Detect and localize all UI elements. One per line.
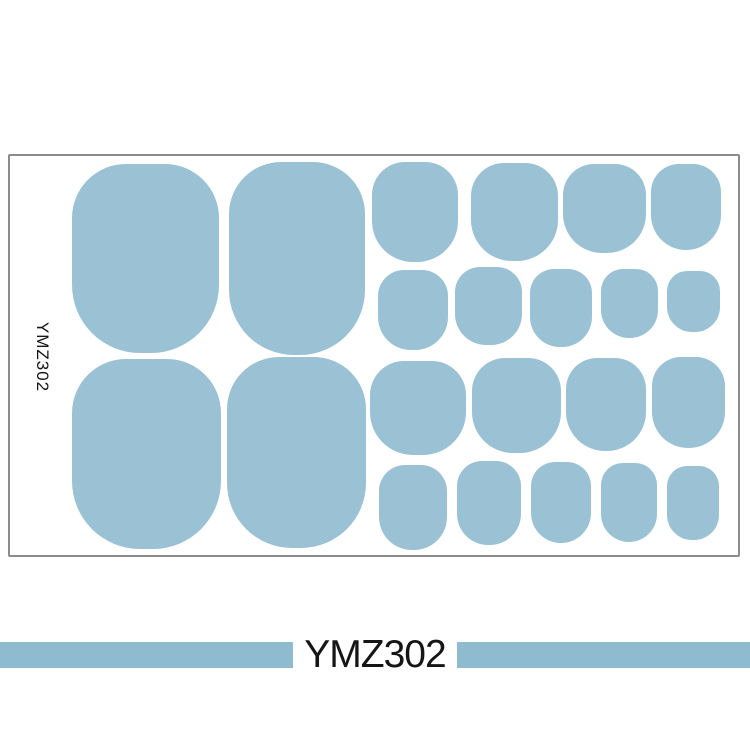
nail-sticker-g1-small-3	[530, 269, 592, 347]
nail-sticker-g1-small-4	[601, 269, 658, 338]
nail-sticker-g1-mid-3	[563, 164, 646, 253]
nail-sticker-g2-mid-1	[370, 361, 466, 455]
nail-sticker-g2-small-4	[601, 463, 657, 542]
product-image: YMZ302 YMZ302	[0, 0, 750, 750]
nail-sticker-g2-small-3	[531, 462, 591, 543]
nail-sticker-g1-large-2	[229, 162, 365, 355]
nail-sticker-g1-mid-4	[651, 164, 721, 250]
nail-sticker-g2-mid-4	[652, 357, 725, 448]
nail-sticker-g1-large-1	[72, 164, 219, 353]
nail-sticker-g2-small-5	[667, 466, 719, 540]
nail-sticker-g1-small-1	[378, 270, 448, 350]
nail-sticker-g2-mid-2	[472, 358, 561, 453]
nail-sticker-g2-large-1	[72, 359, 221, 549]
nail-sticker-g2-large-2	[227, 357, 366, 548]
banner-bar-right	[457, 642, 750, 668]
nail-sticker-g2-small-1	[379, 465, 447, 550]
nail-sticker-g1-small-5	[667, 271, 720, 332]
bottom-banner: YMZ302	[0, 642, 750, 668]
nail-sticker-g2-small-2	[457, 461, 521, 545]
product-code-label: YMZ302	[293, 635, 456, 675]
nail-sticker-g2-mid-3	[566, 358, 646, 451]
nail-sticker-g1-mid-2	[471, 163, 558, 261]
banner-bar-left	[0, 642, 293, 668]
nail-sticker-g1-mid-1	[372, 162, 458, 262]
nail-sticker-g1-small-2	[455, 267, 522, 345]
